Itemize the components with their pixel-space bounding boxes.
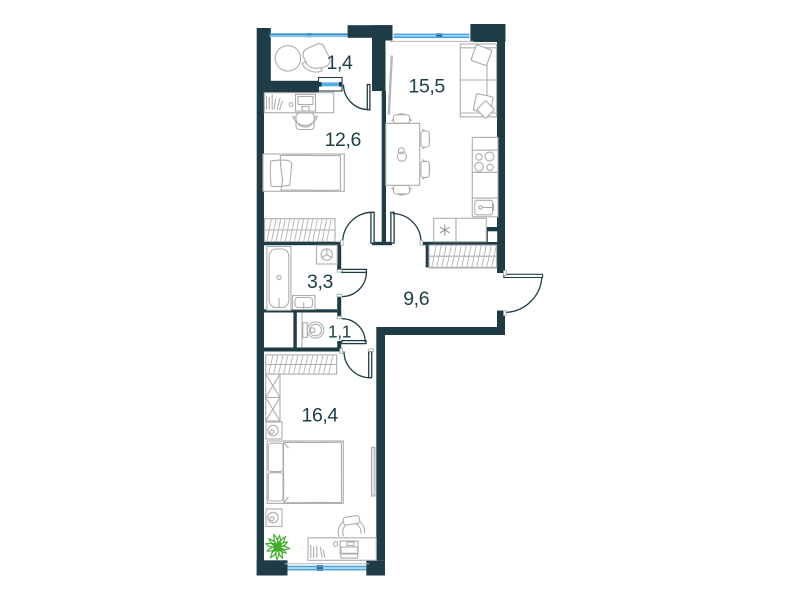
svg-text:9,6: 9,6 bbox=[403, 288, 429, 310]
svg-text:15,5: 15,5 bbox=[409, 75, 446, 97]
svg-text:1,4: 1,4 bbox=[327, 52, 353, 74]
svg-text:16,4: 16,4 bbox=[302, 404, 339, 426]
svg-text:12,6: 12,6 bbox=[325, 129, 361, 151]
svg-text:1,1: 1,1 bbox=[328, 321, 351, 341]
svg-text:3,3: 3,3 bbox=[307, 271, 333, 293]
